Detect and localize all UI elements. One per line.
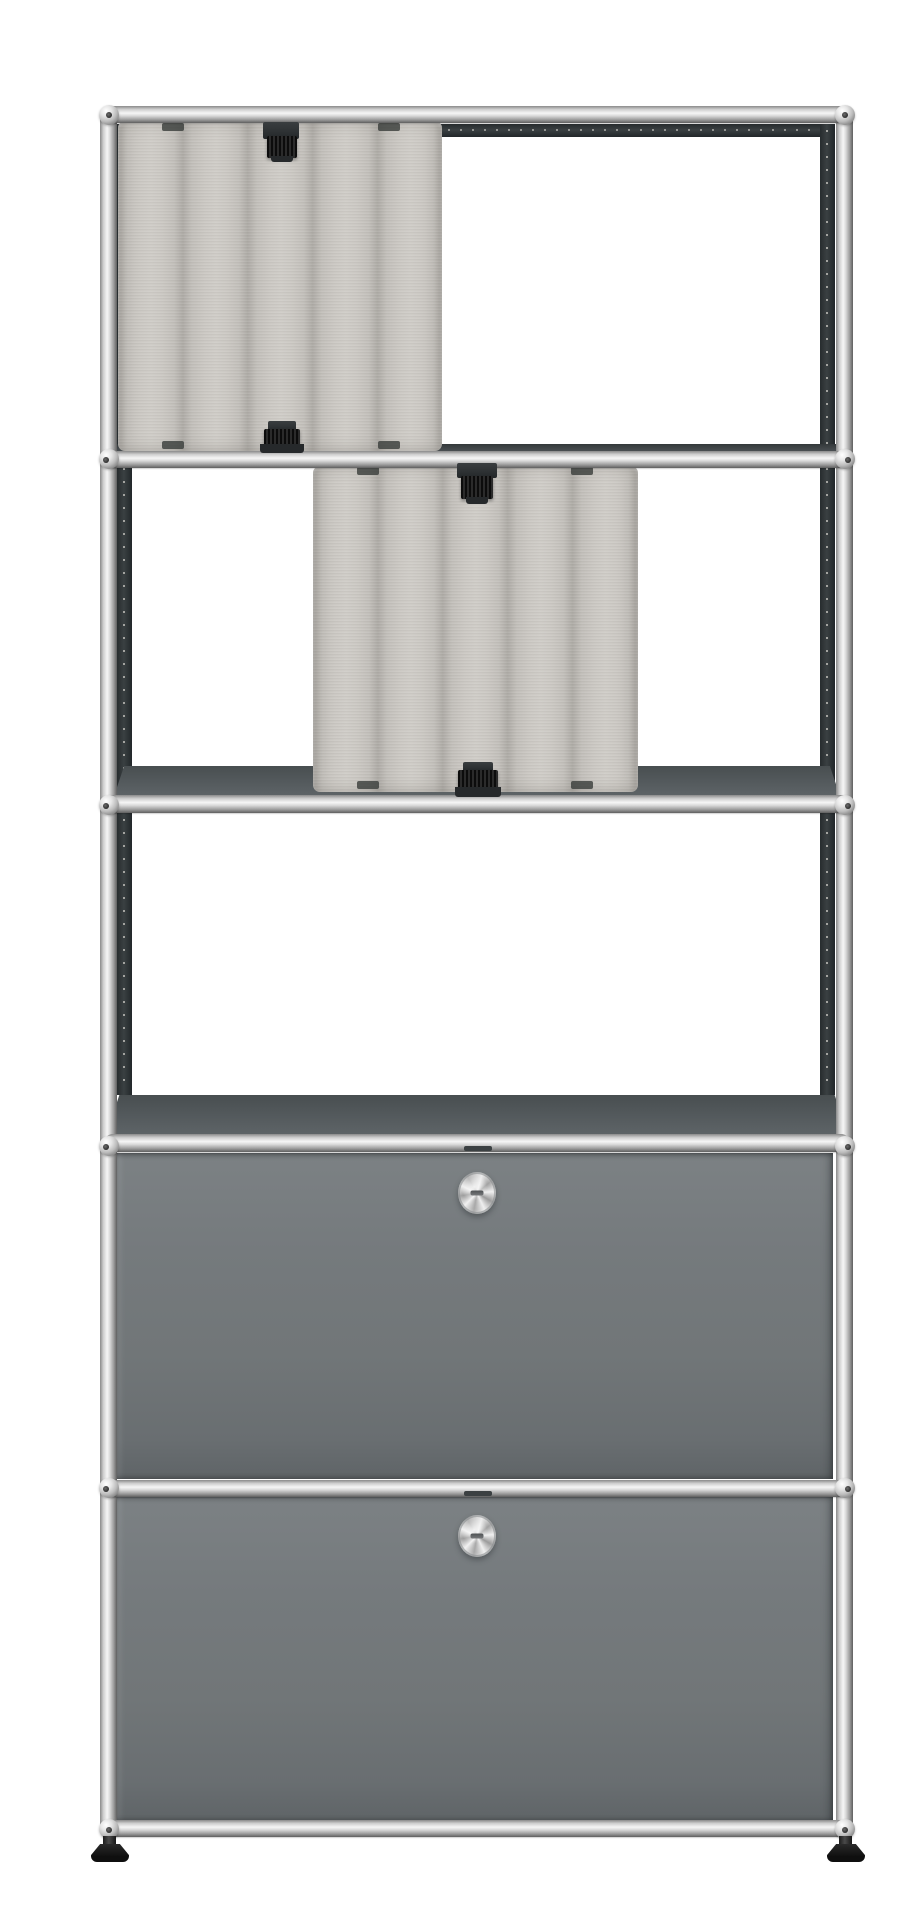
door-knob-row5 xyxy=(458,1515,496,1557)
right-perforated-rail xyxy=(820,124,835,1095)
felt-panel-row2 xyxy=(313,466,638,792)
shelf-top-row3 xyxy=(106,1095,848,1135)
felt1-slot-top-left xyxy=(162,123,184,131)
ball-joint-r3-left xyxy=(99,1136,119,1156)
felt1-clip-top-lip xyxy=(271,156,293,162)
ball-joint-r1-right xyxy=(835,449,855,469)
ball-joint-top-right xyxy=(835,105,855,125)
ball-joint-r2-right xyxy=(835,795,855,815)
ball-joint-r4-left xyxy=(99,1478,119,1498)
felt1-slot-top-right xyxy=(378,123,400,131)
felt2-clip-top-lip xyxy=(466,497,488,504)
knob-slot xyxy=(471,1191,484,1196)
felt1-clip-bottom-lip xyxy=(260,444,304,453)
felt2-clip-bottom-lip xyxy=(455,787,501,797)
felt2-slot-top-right xyxy=(571,467,593,475)
felt2-slot-bottom-left xyxy=(357,781,379,789)
door-knob-row4 xyxy=(458,1172,496,1214)
ball-joint-r4-right xyxy=(835,1478,855,1498)
foot-right xyxy=(827,1844,865,1862)
door-catch-row5 xyxy=(464,1491,492,1496)
felt1-slot-bottom-right xyxy=(378,441,400,449)
ball-joint-r2-left xyxy=(99,795,119,815)
felt2-slot-bottom-right xyxy=(571,781,593,789)
knob-slot xyxy=(471,1534,484,1539)
ball-joint-top-left xyxy=(99,105,119,125)
felt2-clip-top-pad xyxy=(461,476,493,499)
frame-column-left xyxy=(100,107,117,1837)
felt2-slot-top-left xyxy=(357,467,379,475)
ball-joint-r3-right xyxy=(835,1136,855,1156)
felt1-slot-bottom-left xyxy=(162,441,184,449)
frame-tube-row2-3 xyxy=(104,795,850,813)
frame-column-right xyxy=(836,107,853,1837)
felt-panel-row1 xyxy=(118,121,442,451)
ball-joint-r1-left xyxy=(99,449,119,469)
frame-tube-top xyxy=(104,106,850,123)
foot-left xyxy=(91,1844,129,1862)
felt1-clip-top-pad xyxy=(267,136,297,158)
frame-tube-bottom xyxy=(104,1820,850,1837)
product-image-shelving-unit xyxy=(0,0,916,1920)
door-catch-row4 xyxy=(464,1146,492,1151)
